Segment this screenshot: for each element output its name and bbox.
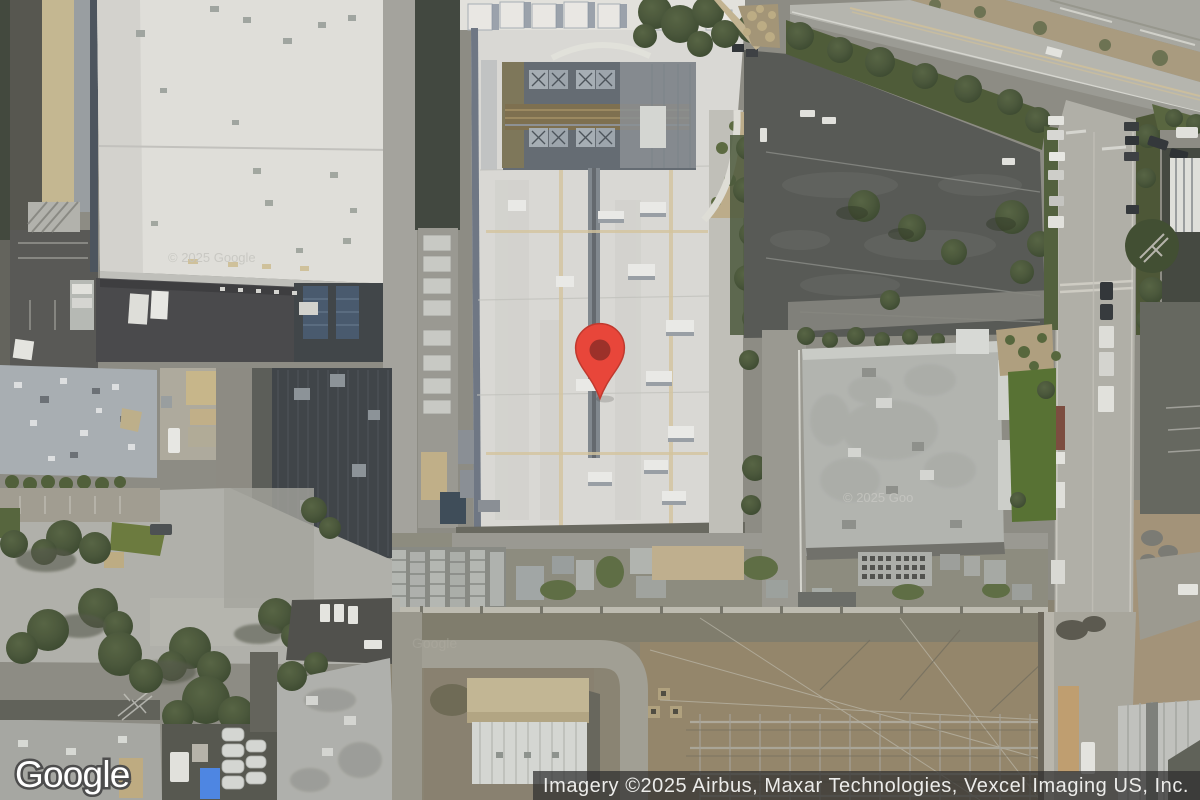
- svg-text:Google: Google: [15, 754, 130, 795]
- svg-text:Imagery ©2025 Airbus, Maxar Te: Imagery ©2025 Airbus, Maxar Technologies…: [543, 775, 1189, 797]
